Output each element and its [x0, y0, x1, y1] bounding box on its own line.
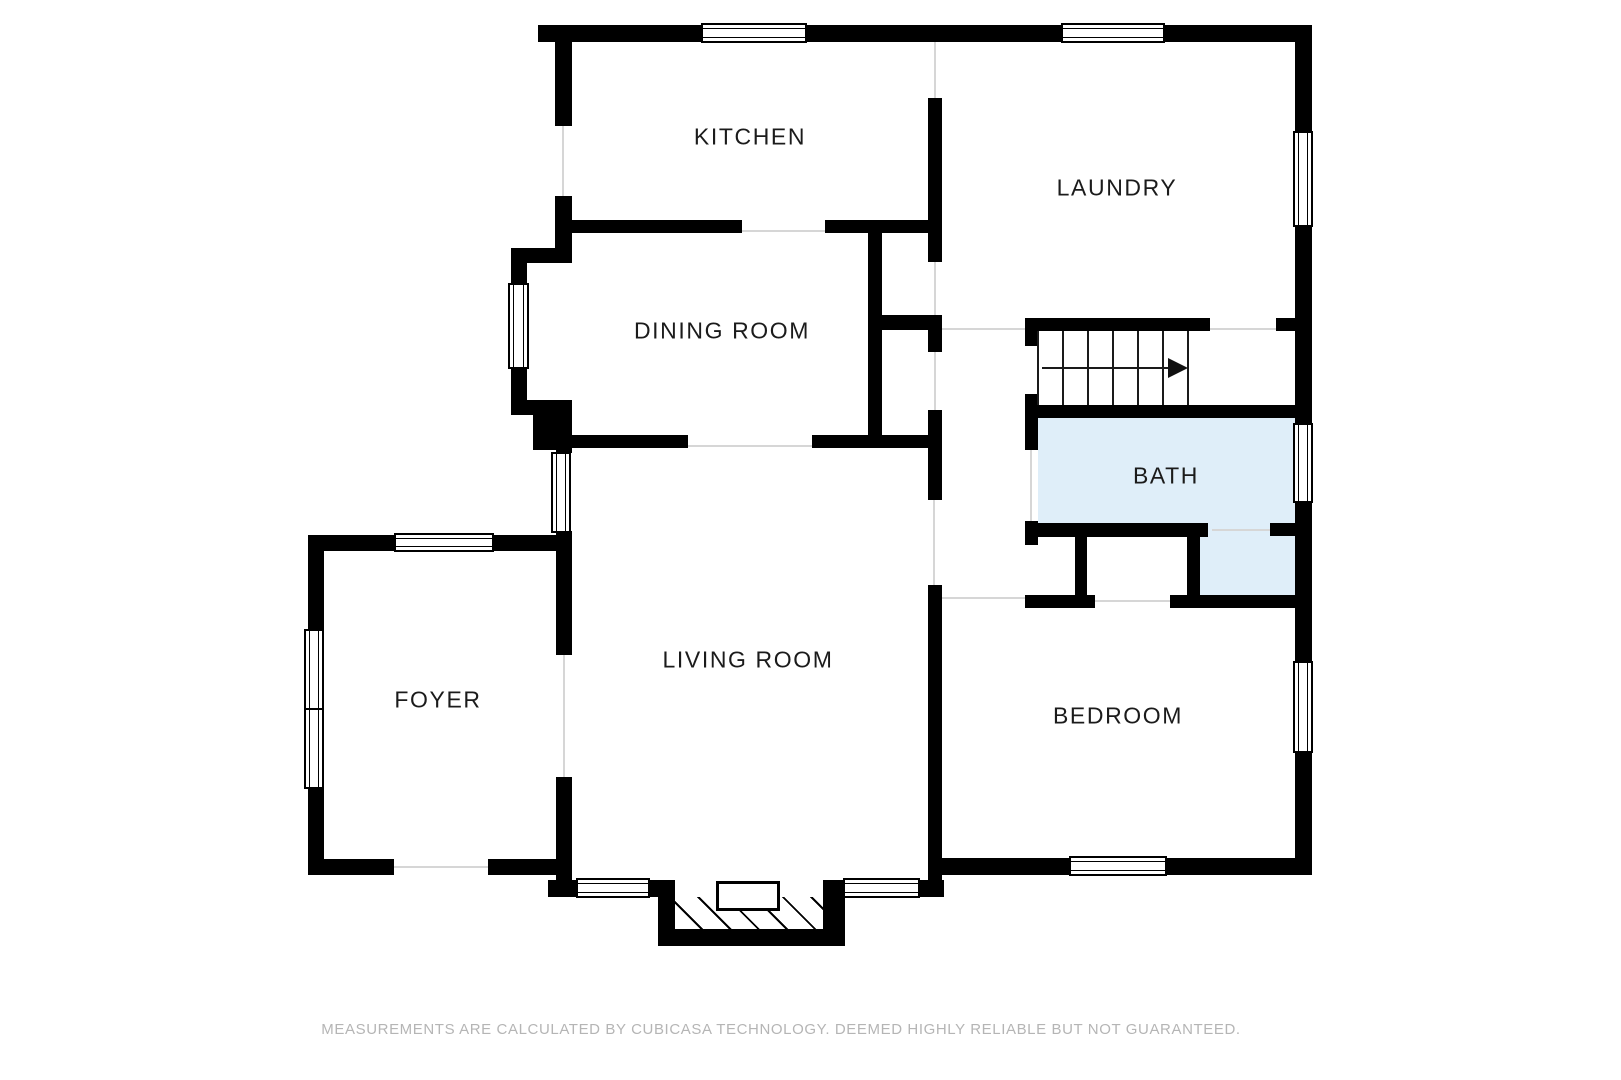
window [394, 533, 494, 552]
window [304, 708, 324, 789]
window [576, 878, 650, 898]
window [304, 629, 324, 710]
wall [555, 220, 742, 233]
wall [488, 859, 572, 875]
opening-line [934, 352, 936, 410]
opening-line [1095, 600, 1170, 602]
wall [916, 880, 944, 897]
room-label-foyer: FOYER [394, 687, 481, 714]
window [1293, 131, 1313, 227]
wall [511, 248, 572, 263]
room-label-laundry: LAUNDRY [1057, 175, 1178, 202]
opening-line [562, 126, 564, 196]
wall [658, 929, 845, 946]
wall [1170, 595, 1295, 608]
wall [1295, 42, 1312, 133]
stairs-direction-line [1042, 367, 1172, 369]
wall [556, 435, 572, 453]
window [701, 23, 807, 43]
window [1293, 661, 1313, 753]
wall [868, 227, 882, 448]
entry-step [716, 881, 780, 911]
opening-line [688, 445, 812, 447]
wall [1025, 523, 1208, 537]
wall [928, 98, 942, 262]
opening-line [934, 42, 936, 98]
wall [1025, 405, 1295, 418]
stair-tread-line [1037, 331, 1039, 405]
opening-line [394, 866, 488, 868]
room-label-kitchen: KITCHEN [694, 124, 806, 151]
room-label-living: LIVING ROOM [663, 647, 834, 674]
opening-line [942, 328, 1025, 330]
window [1069, 856, 1167, 876]
wall [1270, 523, 1295, 536]
window [551, 452, 571, 533]
wall [1025, 318, 1210, 331]
opening-line [742, 230, 825, 232]
window [843, 878, 920, 898]
wall [555, 42, 572, 126]
wall [825, 220, 942, 233]
wall [868, 315, 942, 330]
wall [928, 410, 942, 500]
window [1061, 23, 1165, 43]
wall [1276, 318, 1295, 331]
room-label-dining: DINING ROOM [634, 318, 810, 345]
wall [1025, 595, 1095, 608]
window [508, 283, 529, 369]
opening-line [563, 655, 565, 777]
opening-line [942, 597, 1025, 599]
opening-line [1212, 529, 1270, 531]
room-label-bath: BATH [1133, 463, 1199, 490]
opening-line [933, 500, 935, 585]
opening-line [1210, 328, 1276, 330]
opening-line [1030, 450, 1032, 521]
wall [538, 25, 1312, 42]
wall [1295, 751, 1312, 875]
disclaimer-text: MEASUREMENTS ARE CALCULATED BY CUBICASA … [321, 1021, 1240, 1038]
wall [1295, 501, 1312, 663]
wall [1025, 405, 1038, 450]
wall [308, 859, 394, 875]
opening-line [934, 262, 936, 315]
stairs-direction-arrow [1168, 358, 1188, 378]
floor-plan: KITCHEN LAUNDRY DINING ROOM BATH FOYER L… [0, 0, 1621, 1080]
wall [928, 585, 942, 880]
room-label-bedroom: BEDROOM [1053, 703, 1183, 730]
wall [1295, 225, 1312, 425]
wall [812, 435, 942, 448]
window [1293, 423, 1313, 503]
